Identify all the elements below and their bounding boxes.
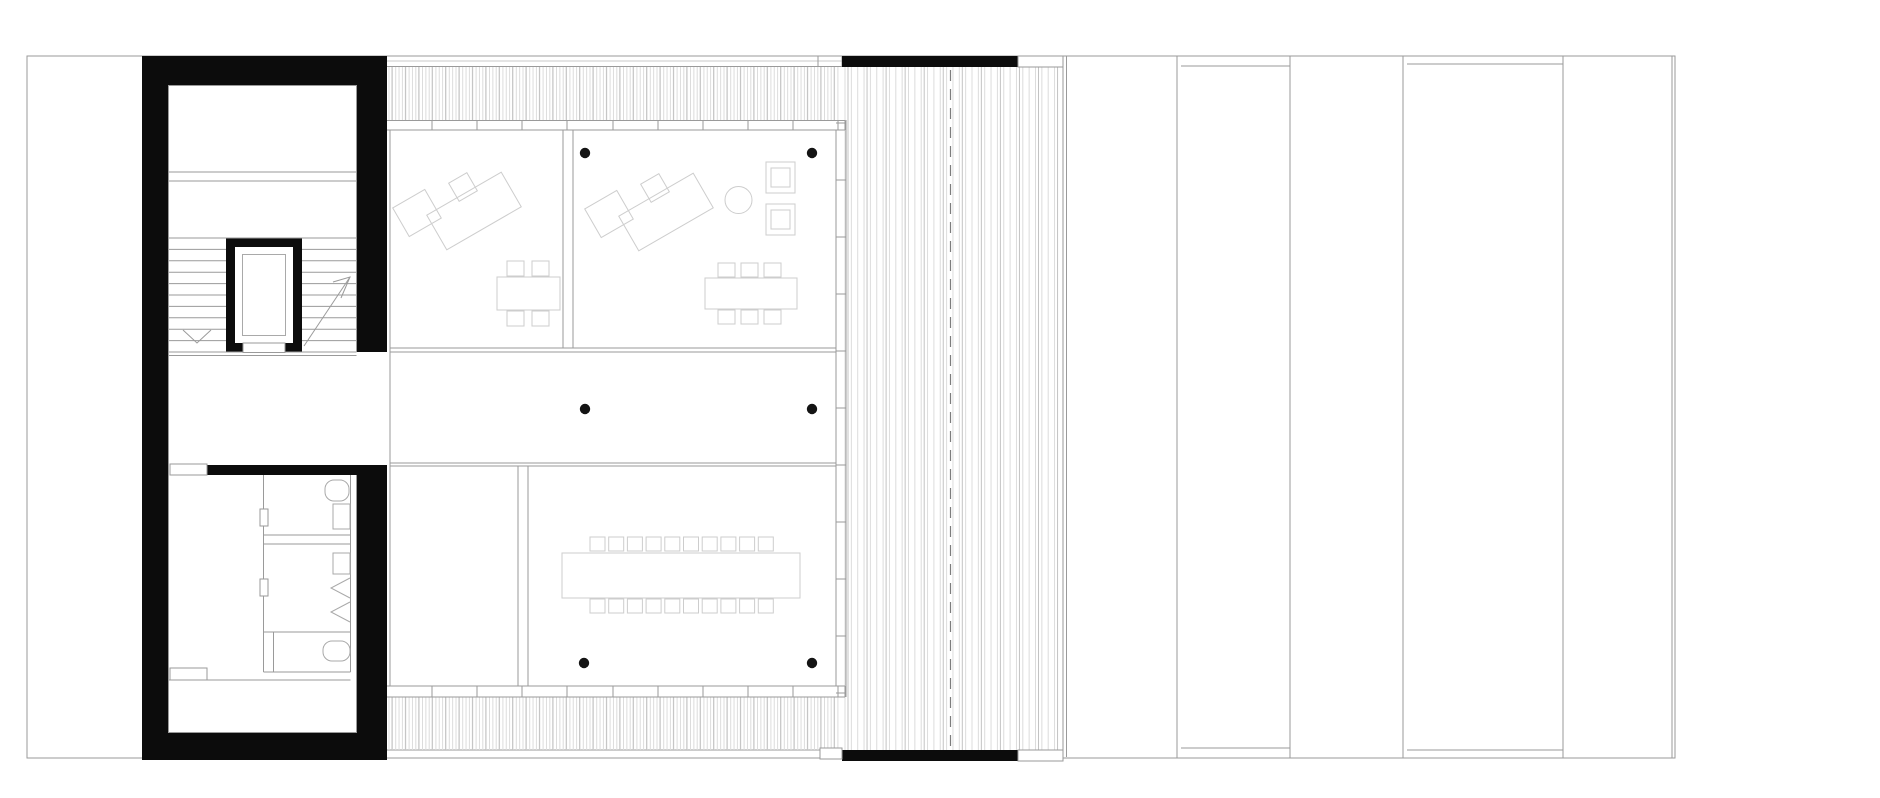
structural-column (580, 404, 590, 414)
wc-toilet (325, 480, 349, 501)
meeting-chairs-bottom (590, 599, 605, 613)
wc-block-wall (206, 465, 358, 475)
desk-return (585, 190, 634, 237)
wc-urinal (331, 602, 350, 622)
meeting-chairs-bottom (702, 599, 717, 613)
core-wall-west (142, 56, 168, 760)
meeting-chairs-top (609, 537, 624, 551)
core-wall-east-upper (357, 56, 387, 352)
lounge-chair-inner (771, 168, 790, 187)
desk-chair (641, 174, 670, 203)
meeting-chairs-bottom (609, 599, 624, 613)
meeting-chairs-top (702, 537, 717, 551)
floor-plan-page (0, 0, 1880, 798)
meeting-chairs-top (740, 537, 755, 551)
structural-columns (579, 148, 817, 668)
walkway-bottom (387, 686, 845, 750)
screen-wall-top (842, 56, 1018, 67)
chairs (718, 263, 735, 277)
stair-up-arrow (304, 277, 350, 346)
door-jamb (260, 509, 268, 526)
chairs (718, 310, 735, 324)
wall-opening (1018, 750, 1063, 761)
floor-plan-canvas (0, 0, 1880, 798)
structural-column (807, 658, 817, 668)
meeting-chairs-top (684, 537, 699, 551)
wc-urinal (331, 578, 350, 598)
deck (845, 56, 1067, 757)
meeting-chairs-bottom (627, 599, 642, 613)
work-table (705, 278, 797, 309)
desk-return (393, 189, 442, 236)
core-wall-south (142, 733, 387, 760)
wc-sink (333, 553, 350, 574)
elevator-interior (235, 247, 293, 343)
walkway-top (387, 56, 845, 130)
screen-wall-bottom (842, 750, 1018, 761)
office-block (390, 120, 846, 697)
lounge-chair (766, 162, 795, 193)
chairs (764, 310, 781, 324)
desk (619, 173, 713, 251)
chairs (764, 263, 781, 277)
meeting-chairs-top (665, 537, 680, 551)
lounge-chair (766, 204, 795, 235)
structural-column (579, 658, 589, 668)
chairs (741, 263, 758, 277)
desk-chair (449, 173, 478, 202)
core-wall-north (142, 56, 387, 85)
garden-panels (1177, 56, 1563, 758)
wc-toilet (323, 641, 350, 661)
meeting-chairs-top (627, 537, 642, 551)
door-jamb (260, 579, 268, 596)
meeting-chairs-bottom (721, 599, 736, 613)
furniture (393, 162, 800, 613)
meeting-table (562, 553, 800, 598)
core-wall-east-lower (357, 465, 387, 760)
wall-opening (820, 748, 842, 759)
structural-column (807, 148, 817, 158)
door-leaf (170, 464, 207, 475)
chairs (532, 311, 549, 326)
meeting-chairs-bottom (684, 599, 699, 613)
structural-column (807, 404, 817, 414)
wall-opening (1018, 56, 1063, 67)
chairs (507, 311, 524, 326)
meeting-chairs-top (721, 537, 736, 551)
round-table (725, 187, 752, 214)
lounge-chair-inner (771, 210, 790, 229)
meeting-chairs-bottom (758, 599, 773, 613)
desk (427, 172, 521, 250)
structural-column (580, 148, 590, 158)
chairs (507, 261, 524, 276)
meeting-chairs-top (758, 537, 773, 551)
chairs (532, 261, 549, 276)
core-interior (168, 85, 357, 733)
meeting-chairs-bottom (740, 599, 755, 613)
meeting-chairs-top (590, 537, 605, 551)
door-leaf (170, 668, 207, 680)
meeting-chairs-bottom (665, 599, 680, 613)
meeting-chairs-top (646, 537, 661, 551)
work-table (497, 277, 560, 310)
chairs (741, 310, 758, 324)
meeting-chairs-bottom (646, 599, 661, 613)
wc-sink (333, 504, 350, 529)
perimeter-screen-walls (820, 56, 1063, 761)
elevator-door (243, 343, 285, 353)
